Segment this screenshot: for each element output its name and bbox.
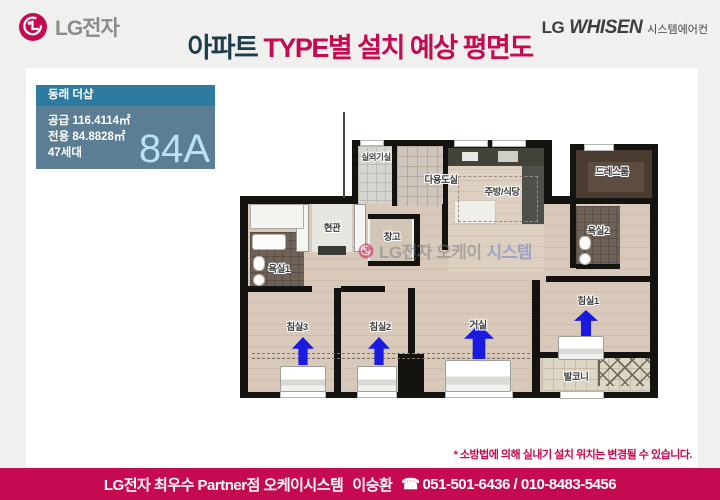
room-label-bedroom1: 침실1 [577,293,598,307]
room-label-living: 거실 [469,317,486,332]
unit-info-body: 공급 116.4114㎡ 전용 84.8828㎡ 47세대 84A [36,106,215,169]
wall [602,352,650,358]
wall [532,280,540,392]
wall [570,204,576,268]
phone-icon: ☎ [401,475,419,493]
room-label-bedroom2: 침실2 [369,319,390,333]
watermark-text-gray: LG전자 오케이 [379,238,482,263]
window [454,140,488,147]
kitchen-sink [462,152,478,161]
wall [576,198,628,204]
whisen-lg-text: LG [542,18,565,38]
window [584,144,614,151]
room-label-kitchen: 주방/식당 [484,184,519,198]
bathroom1-cabinet [250,204,304,229]
whisen-brand: LG WHISEN 시스템에어컨 [542,17,708,39]
room-label-dressroom: 드레스룸 [596,164,629,178]
page-title-part1: 아파트 [187,33,257,63]
page-title-part2: TYPE별 설치 예상 평면도 [257,33,532,63]
window [492,140,526,147]
washbasin [579,253,591,265]
room-label-utility: 다용도실 [425,172,458,186]
ac-unit-bedroom1 [558,336,604,360]
toilet [579,236,591,250]
wall [392,146,397,206]
wall [341,286,385,292]
room-label-bedroom3: 침실3 [286,319,307,333]
vent-pole-line [343,112,345,198]
contact-person: 이승환 [352,474,392,495]
balcony-hatch-area [598,357,650,386]
disclaimer-note: * 소방법에 의해 실내기 설치 위치는 변경될 수 있습니다. [454,446,692,462]
bathtub [252,234,286,250]
kitchen-stove [498,151,518,162]
wall [248,286,312,292]
room-label-balcony: 발코니 [564,369,589,383]
watermark-text-blue: 시스템 [487,238,532,263]
washbasin [253,274,265,286]
dealer-name: LG전자 최우수 Partner점 오케이시스템 [104,474,343,495]
room-label-entry: 현관 [324,220,340,234]
wall [398,354,424,392]
room-label-bathroom1: 욕실1 [268,261,289,275]
room-label-bathroom2: 욕실2 [587,223,608,237]
install-guide-line [252,353,530,354]
kitchen-dashed-zone [458,176,538,222]
whisen-subtitle: 시스템에어컨 [647,21,708,37]
phone-numbers: 051-501-6436 / 010-8483-5456 [422,476,616,493]
install-guide-line [252,358,530,359]
room-label-outdoor-unit: 실외기실 [361,151,390,163]
unit-type-label: 84A [139,130,210,168]
complex-name: 동래 더샵 [36,85,215,106]
phone-block: ☎ 051-501-6436 / 010-8483-5456 [401,475,616,493]
whisen-logo-text: WHISEN [569,17,642,39]
wall [368,214,414,219]
toilet [253,256,265,271]
flyer: { "header": { "logo_text": "LG전자", "titl… [0,0,720,500]
wall [334,288,341,392]
ac-unit-bedroom2 [357,366,397,392]
watermark-lg-icon [358,243,374,259]
floor-plan: 실외기실 다용도실 주방/식당 드레스룸 욕실2 현관 창고 욕실1 침실3 침… [240,140,660,402]
ac-unit-bedroom3 [280,366,326,392]
entry-mat [318,246,346,255]
window [560,391,604,399]
watermark: LG전자 오케이 시스템 [358,238,532,263]
ac-unit-living [445,360,511,392]
window [360,140,384,146]
footer-bar: LG전자 최우수 Partner점 오케이시스템 이승환 ☎ 051-501-6… [0,468,720,500]
wall [546,276,650,282]
unit-info-box: 동래 더샵 공급 116.4114㎡ 전용 84.8828㎡ 47세대 84A [36,85,215,169]
